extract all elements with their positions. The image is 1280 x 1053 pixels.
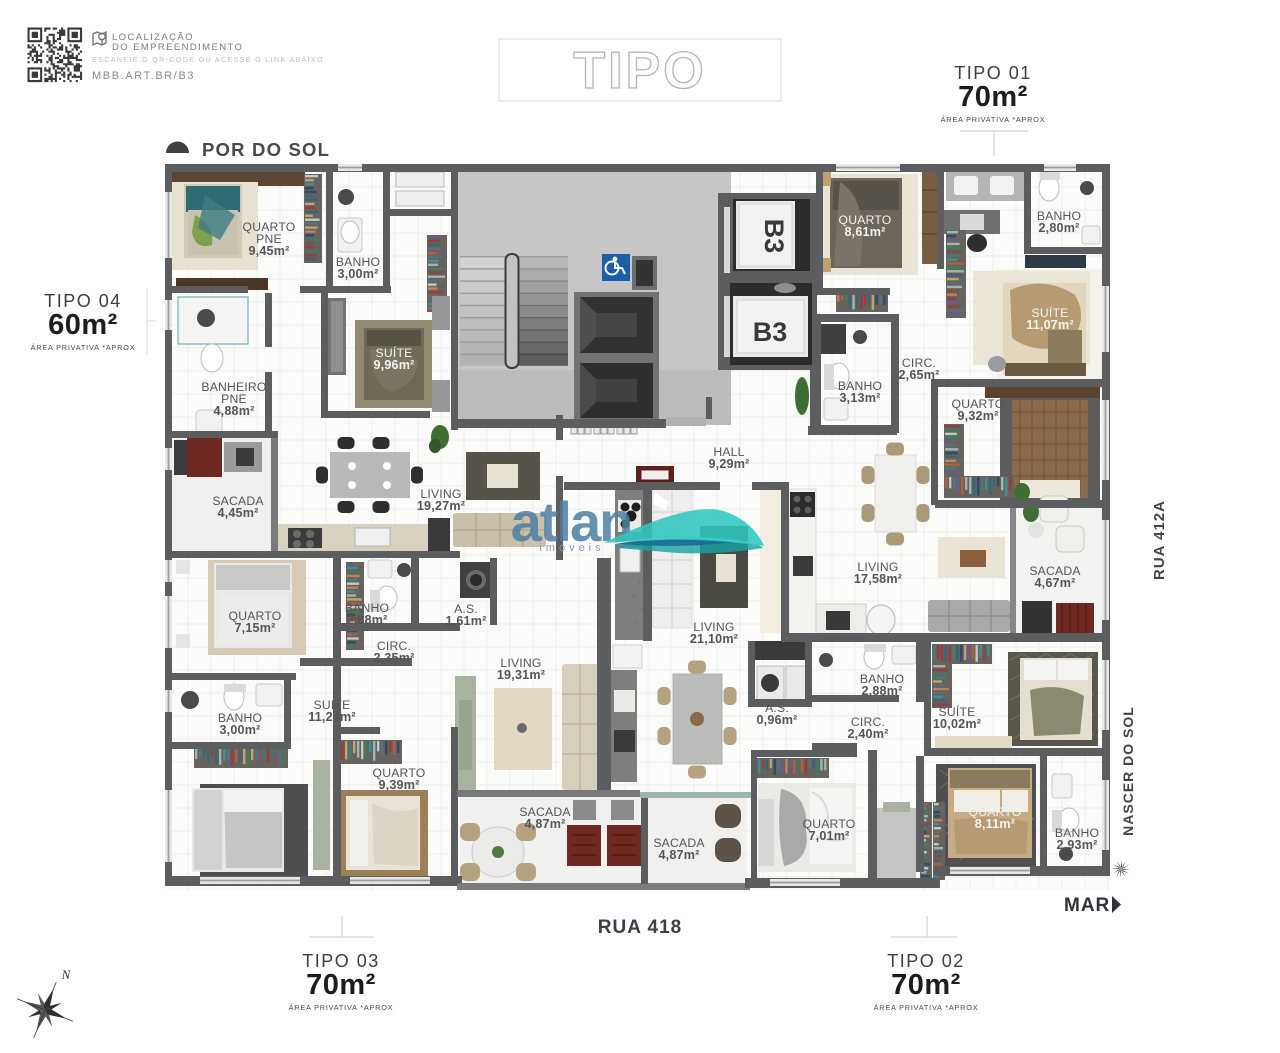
- svg-text:N: N: [61, 967, 72, 982]
- svg-text:TIPO 04: TIPO 04: [44, 291, 122, 311]
- svg-text:3,00m²: 3,00m²: [337, 267, 378, 281]
- svg-text:17,58m²: 17,58m²: [854, 572, 902, 586]
- svg-text:4,88m²: 4,88m²: [213, 404, 254, 418]
- svg-text:2,93m²: 2,93m²: [1056, 838, 1097, 852]
- svg-text:11,24m²: 11,24m²: [308, 710, 356, 724]
- svg-text:TIPO: TIPO: [573, 42, 706, 100]
- svg-text:9,32m²: 9,32m²: [957, 409, 998, 423]
- svg-text:9,96m²: 9,96m²: [373, 358, 414, 372]
- svg-text:RUA 418: RUA 418: [598, 917, 682, 938]
- svg-text:70m²: 70m²: [958, 81, 1028, 113]
- svg-text:10,02m²: 10,02m²: [933, 717, 981, 731]
- svg-text:NASCER DO SOL: NASCER DO SOL: [1120, 706, 1136, 836]
- svg-text:1,61m²: 1,61m²: [445, 614, 486, 628]
- svg-text:7,01m²: 7,01m²: [808, 829, 849, 843]
- svg-text:POR DO SOL: POR DO SOL: [202, 139, 330, 160]
- svg-text:8,11m²: 8,11m²: [975, 817, 1015, 831]
- svg-text:70m²: 70m²: [891, 969, 961, 1001]
- svg-text:3,00m²: 3,00m²: [219, 723, 260, 737]
- svg-text:19,27m²: 19,27m²: [417, 499, 465, 513]
- svg-text:TIPO 03: TIPO 03: [302, 951, 380, 971]
- svg-text:2,80m²: 2,80m²: [1038, 221, 1079, 235]
- svg-text:3,13m²: 3,13m²: [839, 391, 880, 405]
- svg-text:B3: B3: [759, 219, 789, 254]
- svg-text:ÁREA PRIVATIVA *APROX: ÁREA PRIVATIVA *APROX: [31, 343, 136, 352]
- svg-text:60m²: 60m²: [48, 309, 118, 341]
- svg-text:2,65m²: 2,65m²: [898, 368, 939, 382]
- svg-text:imóveis: imóveis: [539, 542, 604, 554]
- svg-text:4,87m²: 4,87m²: [524, 817, 565, 831]
- svg-text:2,40m²: 2,40m²: [847, 727, 888, 741]
- svg-text:TIPO 02: TIPO 02: [887, 951, 965, 971]
- svg-text:4,87m²: 4,87m²: [658, 848, 699, 862]
- svg-text:4,67m²: 4,67m²: [1034, 576, 1075, 590]
- svg-text:8,61m²: 8,61m²: [844, 225, 885, 239]
- svg-text:0,96m²: 0,96m²: [756, 713, 797, 727]
- svg-text:MBB.ART.BR/B3: MBB.ART.BR/B3: [92, 70, 195, 82]
- svg-text:RUA 412A: RUA 412A: [1151, 500, 1168, 580]
- svg-text:B3: B3: [753, 317, 788, 347]
- svg-text:19,31m²: 19,31m²: [497, 668, 545, 682]
- svg-text:DO EMPREENDIMENTO: DO EMPREENDIMENTO: [112, 42, 243, 53]
- svg-text:ESCANEIE O QR-CODE OU ACESSE O: ESCANEIE O QR-CODE OU ACESSE O LINK ABAI…: [92, 55, 324, 64]
- svg-text:9,45m²: 9,45m²: [248, 244, 289, 258]
- svg-text:9,29m²: 9,29m²: [708, 457, 749, 471]
- svg-text:MAR: MAR: [1064, 895, 1110, 916]
- svg-text:ÁREA PRIVATIVA *APROX: ÁREA PRIVATIVA *APROX: [289, 1003, 394, 1012]
- svg-text:2,35m²: 2,35m²: [373, 651, 414, 665]
- svg-text:21,10m²: 21,10m²: [690, 632, 738, 646]
- svg-text:ÁREA PRIVATIVA *APROX: ÁREA PRIVATIVA *APROX: [874, 1003, 979, 1012]
- svg-text:11,07m²: 11,07m²: [1026, 318, 1074, 332]
- svg-text:ÁREA PRIVATIVA *APROX: ÁREA PRIVATIVA *APROX: [941, 115, 1046, 124]
- svg-text:2,88m²: 2,88m²: [346, 613, 387, 627]
- svg-text:2,88m²: 2,88m²: [861, 684, 902, 698]
- svg-text:TIPO 01: TIPO 01: [954, 63, 1032, 83]
- svg-text:4,45m²: 4,45m²: [217, 506, 258, 520]
- svg-text:7,15m²: 7,15m²: [234, 621, 275, 635]
- svg-text:70m²: 70m²: [306, 969, 376, 1001]
- svg-text:9,39m²: 9,39m²: [378, 778, 419, 792]
